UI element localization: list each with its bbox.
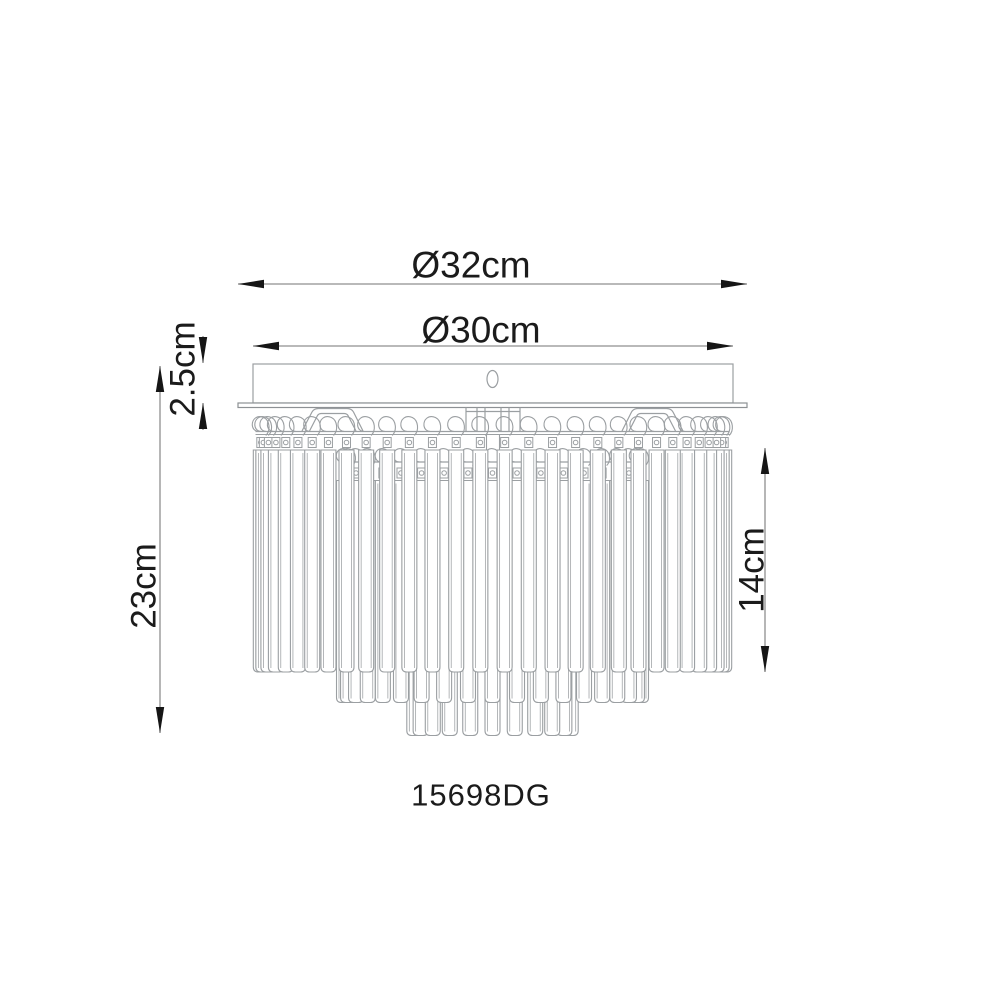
arrow-up-icon xyxy=(761,448,769,474)
label-outer-diameter: Ø32cm xyxy=(411,247,530,284)
right-hanger-loop-inner xyxy=(629,414,676,432)
label-canopy-diameter: Ø30cm xyxy=(421,312,540,349)
product-code: 15698DG xyxy=(411,780,551,811)
canopy-body xyxy=(253,364,733,403)
arrow-right-icon xyxy=(707,342,733,350)
label-crystal-length: 14cm xyxy=(735,527,770,613)
canopy xyxy=(238,364,747,408)
arrow-right-icon xyxy=(721,280,747,288)
arrow-down-icon xyxy=(156,707,164,733)
arrow-left-icon xyxy=(253,342,279,350)
left-hanger-loop-inner xyxy=(310,414,357,432)
canopy-base-plate xyxy=(238,403,747,408)
chandelier-line-drawing xyxy=(0,0,1000,1000)
arrow-down-icon xyxy=(761,646,769,672)
technical-drawing-canvas: Ø32cm Ø30cm 2.5cm 23cm 14cm 15698DG xyxy=(0,0,1000,1000)
crystal-rod-assembly xyxy=(252,417,732,736)
label-total-height: 23cm xyxy=(127,543,162,629)
label-canopy-height: 2.5cm xyxy=(166,321,201,416)
arrow-left-icon xyxy=(238,280,264,288)
